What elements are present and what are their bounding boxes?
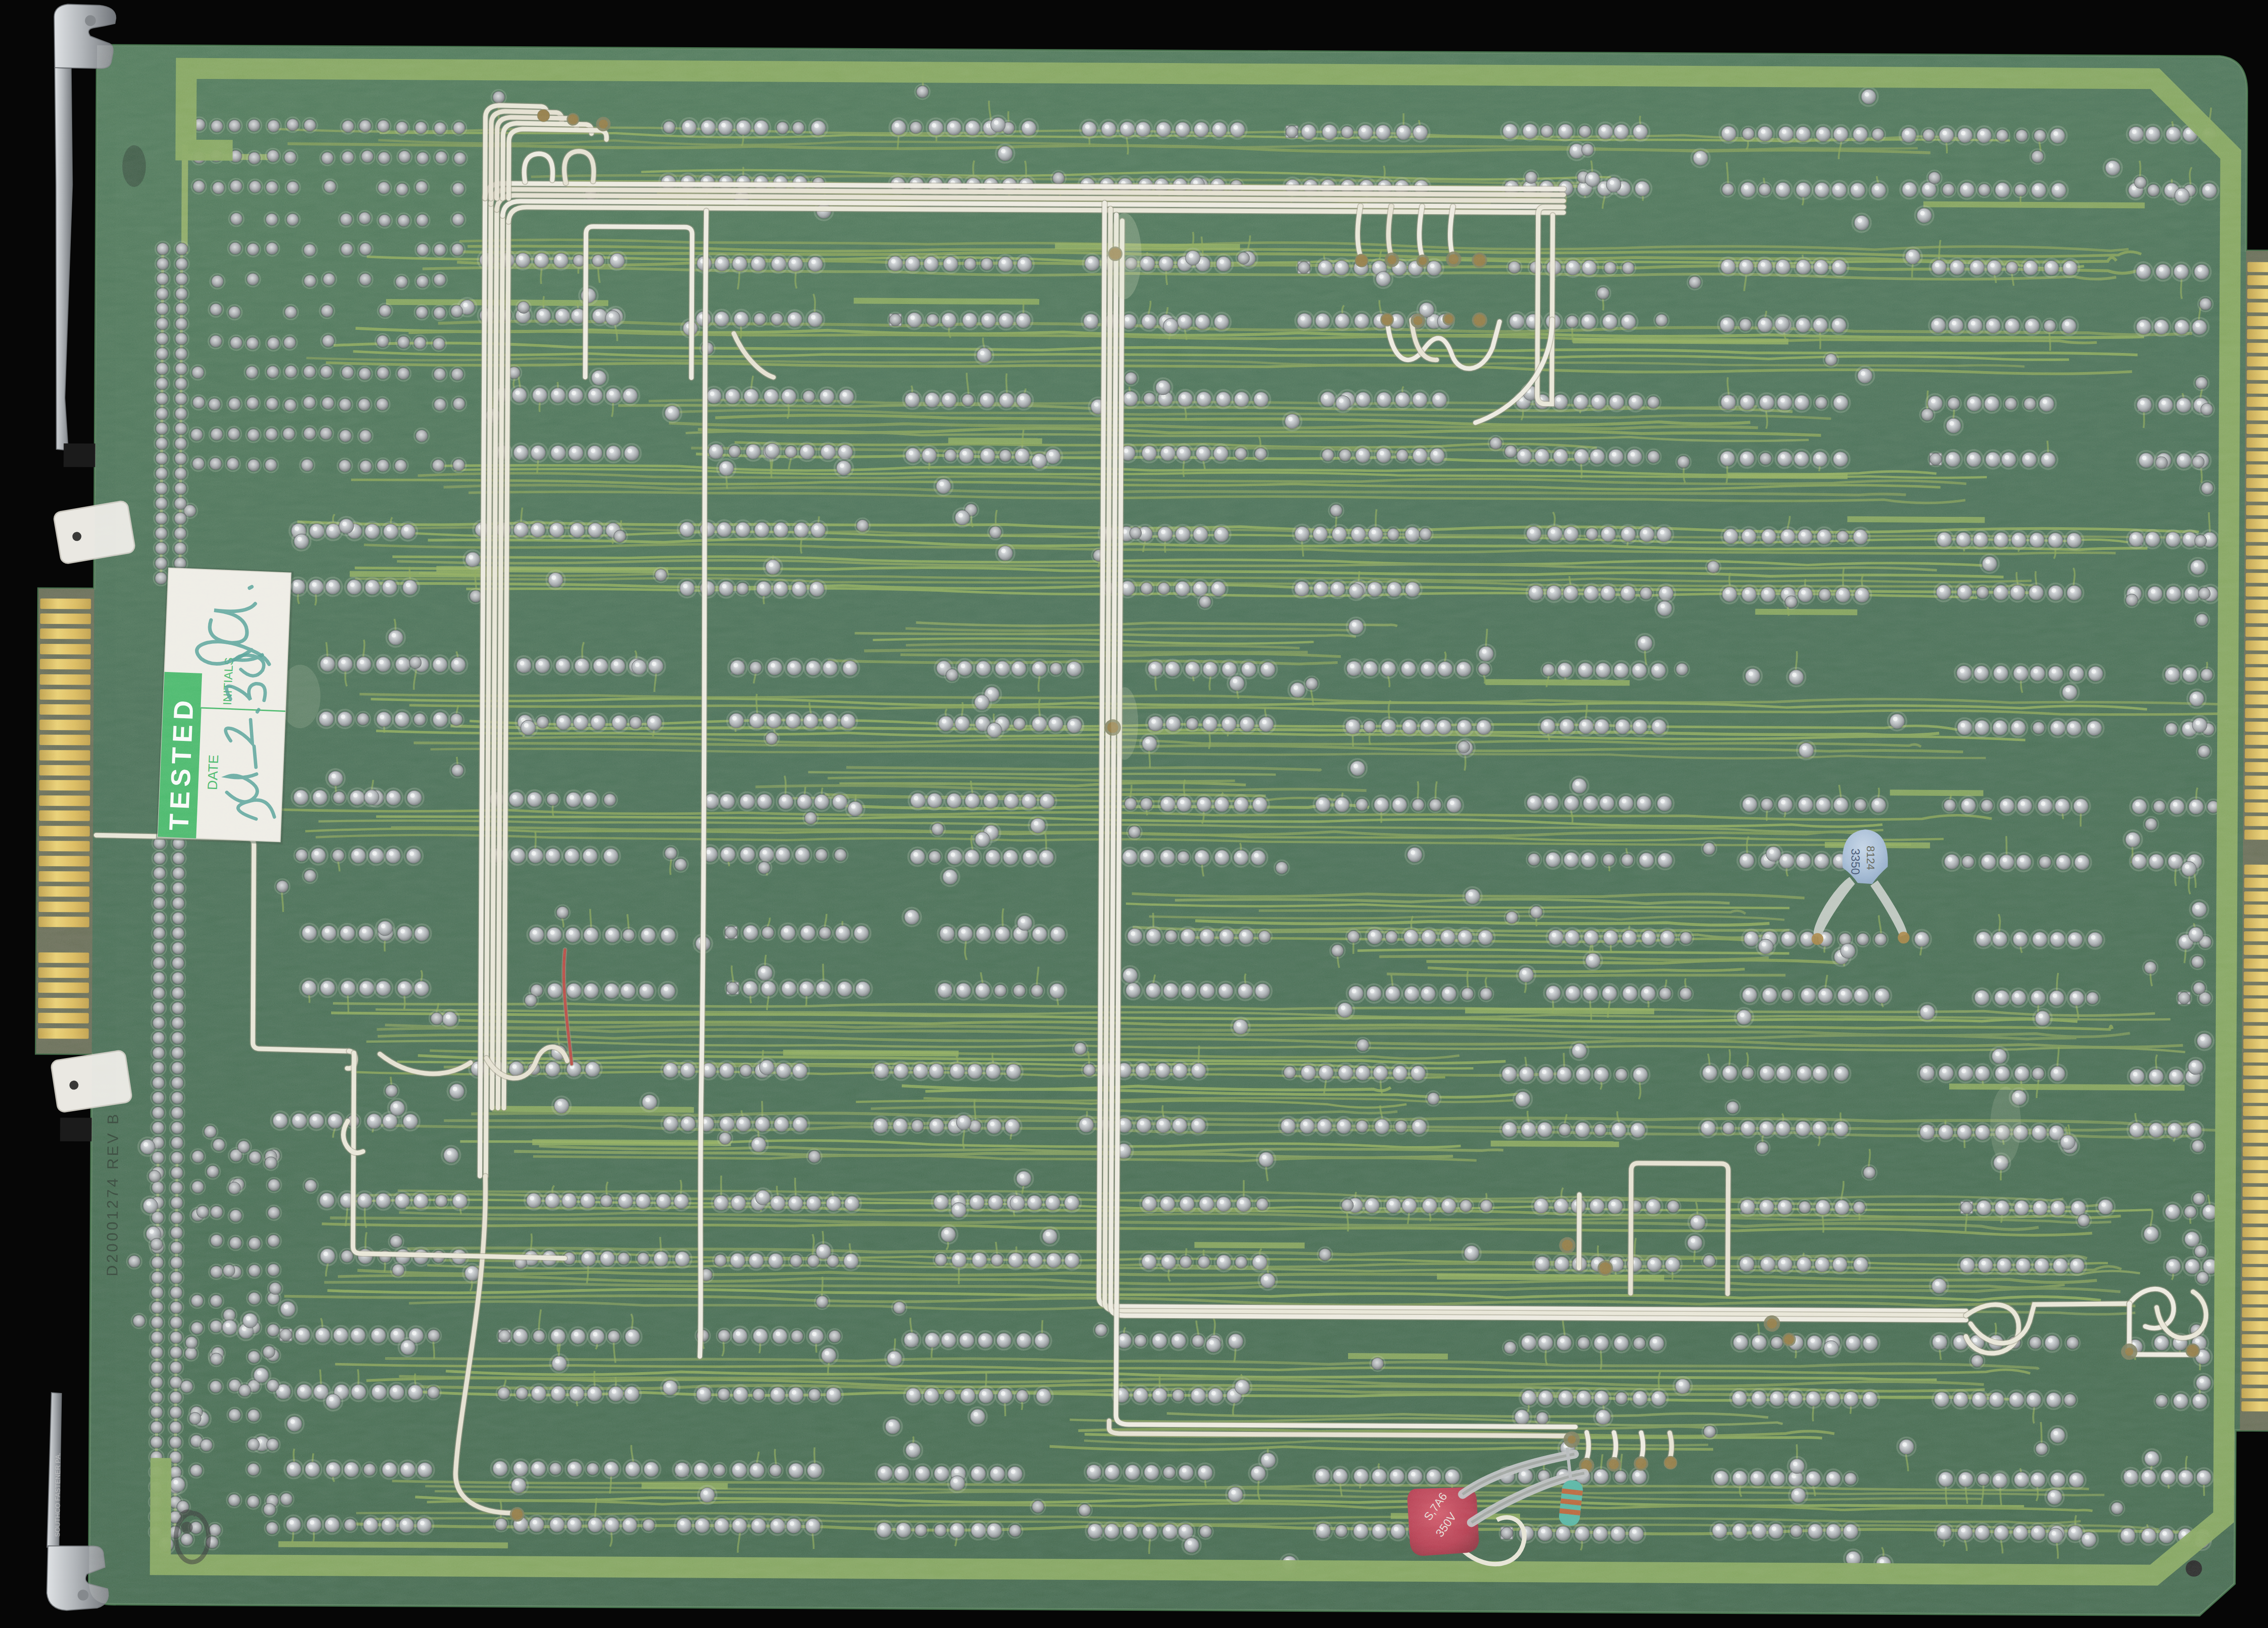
- svg-text:SOUTHCO FASTENER PA.: SOUTHCO FASTENER PA.: [54, 1453, 62, 1537]
